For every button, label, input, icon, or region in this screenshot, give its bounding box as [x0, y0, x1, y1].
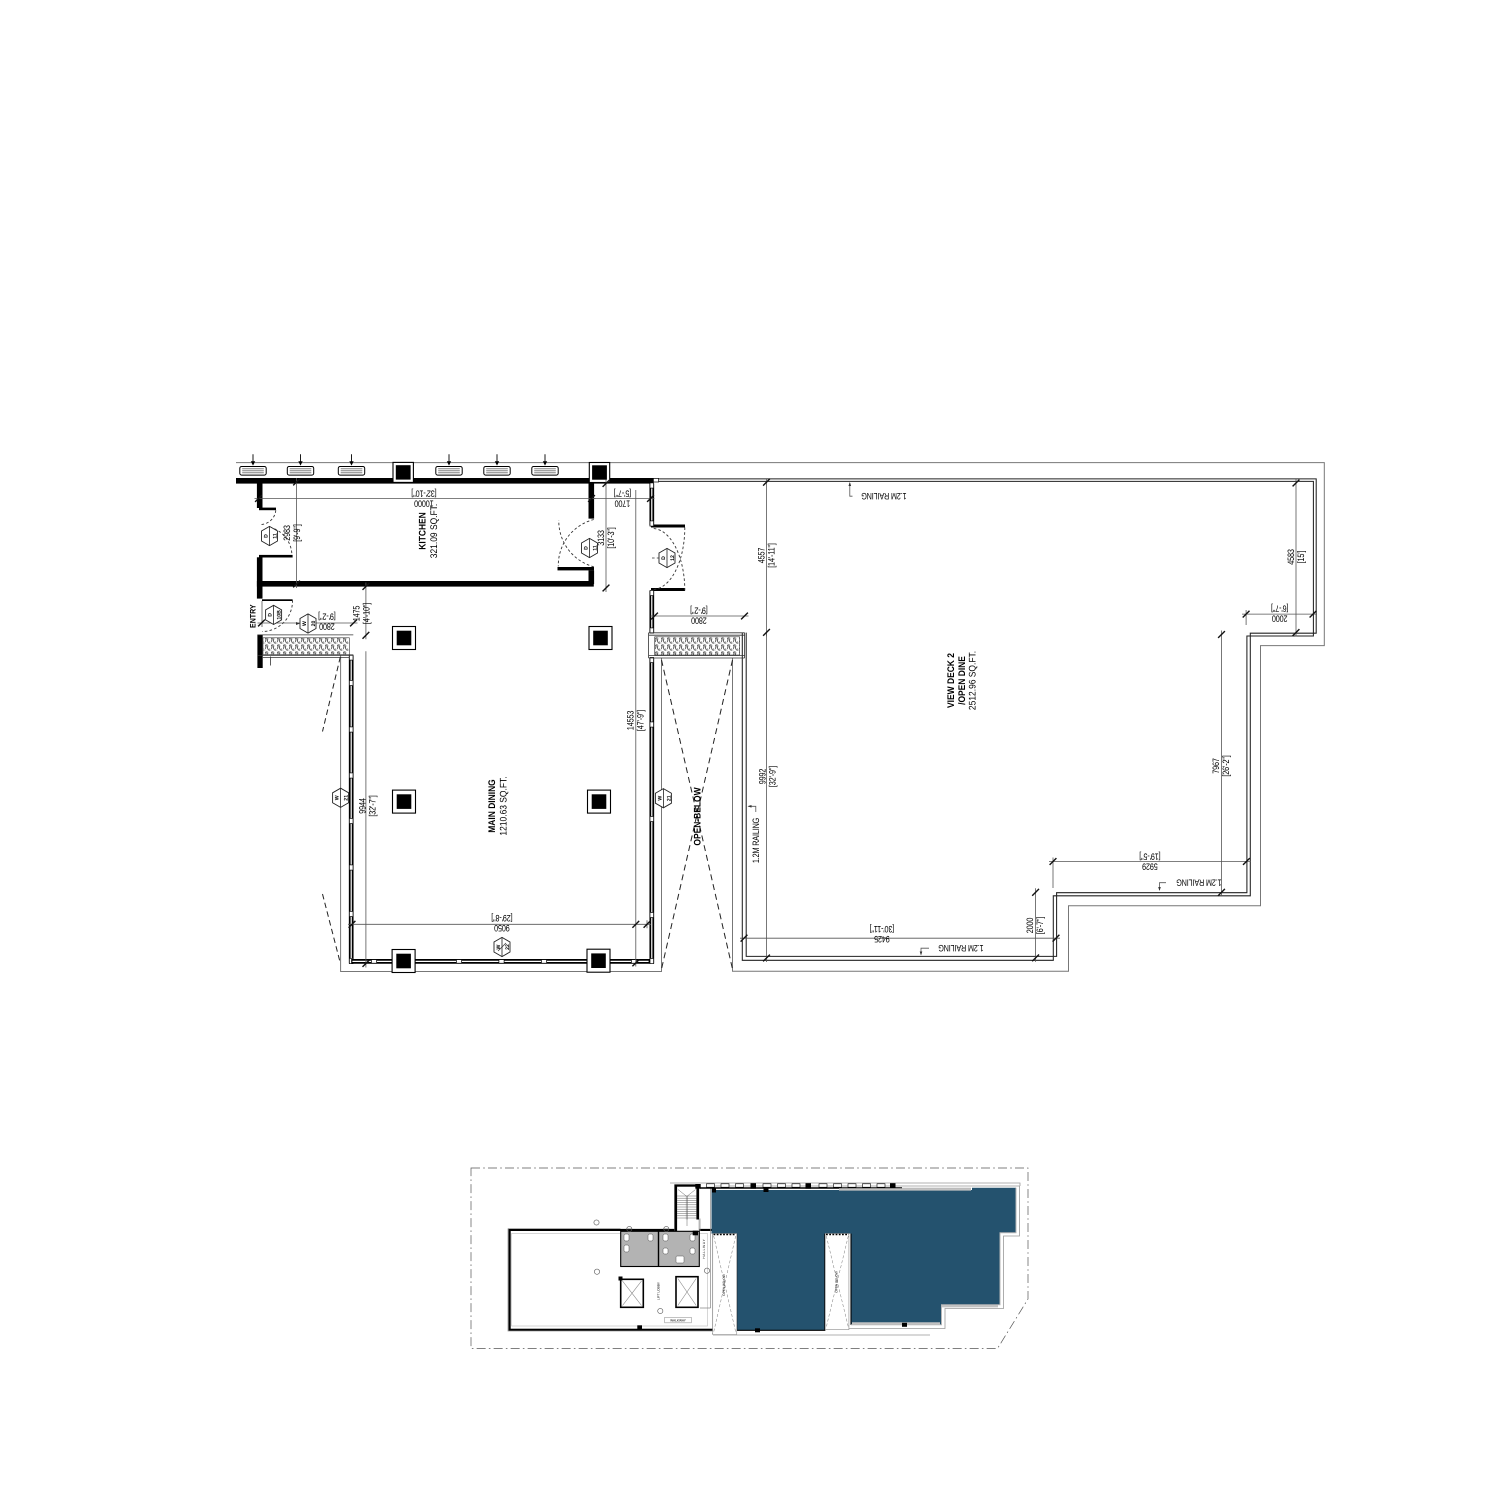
svg-text:321.09 SQ.FT.: 321.09 SQ.FT.: [429, 504, 440, 558]
svg-text:5929: 5929: [1142, 861, 1158, 871]
svg-text:1475: 1475: [352, 606, 362, 622]
svg-text:7967: 7967: [1211, 758, 1221, 774]
svg-text:10B: 10B: [277, 610, 283, 620]
svg-text:D: D: [583, 546, 589, 550]
svg-text:[19'-5"]: [19'-5"]: [1139, 851, 1160, 861]
svg-text:11: 11: [593, 545, 599, 551]
svg-text:D: D: [268, 613, 274, 617]
svg-text:D: D: [661, 556, 667, 560]
svg-text:[6'-7"]: [6'-7"]: [1035, 917, 1045, 934]
svg-text:[10'-3"]: [10'-3"]: [606, 527, 616, 548]
svg-text:[9'-2"]: [9'-2"]: [318, 611, 335, 621]
svg-text:[5'-7"]: [5'-7"]: [614, 488, 631, 498]
svg-text:2000: 2000: [1025, 918, 1035, 934]
svg-text:9992: 9992: [758, 769, 768, 785]
svg-text:[47'-9"]: [47'-9"]: [636, 710, 646, 731]
svg-text:OPEN BELOW: OPEN BELOW: [835, 1271, 839, 1292]
svg-text:[29'-8"]: [29'-8"]: [491, 913, 512, 923]
svg-text:4583: 4583: [1286, 549, 1296, 565]
svg-text:1210.63 SQ.FT.: 1210.63 SQ.FT.: [498, 776, 509, 835]
svg-text:1.2M RAILING: 1.2M RAILING: [1176, 878, 1221, 888]
svg-text:20: 20: [311, 621, 317, 627]
svg-text:[32'-9"]: [32'-9"]: [768, 766, 778, 787]
svg-text:21: 21: [666, 795, 672, 801]
svg-text:W: W: [335, 795, 341, 800]
svg-text:/OPEN DINE: /OPEN DINE: [957, 656, 968, 705]
svg-text:ENTRY: ENTRY: [249, 604, 258, 628]
svg-text:2000: 2000: [1272, 613, 1288, 623]
svg-text:9050: 9050: [494, 923, 510, 933]
svg-text:H A L L W A Y: H A L L W A Y: [702, 1238, 706, 1258]
svg-text:14553: 14553: [626, 711, 636, 730]
svg-text:12: 12: [670, 555, 676, 561]
svg-text:WALKWAY: WALKWAY: [670, 1319, 687, 1323]
svg-text:1.2M RAILING: 1.2M RAILING: [861, 491, 906, 501]
svg-text:2800: 2800: [319, 621, 335, 631]
svg-text:1700: 1700: [615, 498, 631, 508]
svg-text:[9'-9"]: [9'-9"]: [292, 524, 302, 541]
svg-text:LIFT LOBBY: LIFT LOBBY: [657, 1281, 661, 1300]
svg-text:9944: 9944: [358, 798, 368, 814]
svg-text:1.2M RAILING: 1.2M RAILING: [751, 818, 761, 863]
svg-text:[15']: [15']: [1296, 551, 1306, 564]
svg-text:11: 11: [273, 533, 279, 539]
svg-text:D: D: [263, 534, 269, 538]
svg-text:21: 21: [344, 795, 350, 801]
svg-text:22: 22: [505, 944, 511, 950]
svg-text:[30'-11"]: [30'-11"]: [870, 924, 895, 934]
svg-text:[14'-11"]: [14'-11"]: [767, 543, 777, 568]
svg-text:W: W: [496, 944, 502, 949]
svg-text:[4'-10"]: [4'-10"]: [362, 603, 372, 624]
svg-text:2512.96 SQ.FT.: 2512.96 SQ.FT.: [968, 651, 979, 710]
svg-text:OPEN-BELOW: OPEN-BELOW: [693, 787, 704, 846]
svg-text:MAIN DINING: MAIN DINING: [487, 779, 498, 832]
svg-text:OPEN BELOW: OPEN BELOW: [722, 1274, 726, 1295]
svg-text:VIEW DECK 2: VIEW DECK 2: [946, 653, 957, 708]
svg-text:[26'-2"]: [26'-2"]: [1221, 755, 1231, 776]
svg-text:2800: 2800: [691, 615, 707, 625]
svg-text:[32'-10"]: [32'-10"]: [411, 488, 436, 498]
svg-text:4557: 4557: [757, 548, 767, 564]
svg-text:9425: 9425: [874, 934, 890, 944]
svg-text:W: W: [657, 796, 663, 801]
svg-text:KITCHEN: KITCHEN: [418, 512, 429, 550]
svg-text:[6'-7"]: [6'-7"]: [1271, 603, 1288, 613]
svg-text:[9'-2"]: [9'-2"]: [690, 605, 707, 615]
svg-text:[32'-7"]: [32'-7"]: [367, 795, 377, 816]
svg-text:W: W: [302, 621, 308, 626]
svg-text:2983: 2983: [282, 525, 292, 541]
svg-text:1.2M RAILING: 1.2M RAILING: [938, 943, 983, 953]
